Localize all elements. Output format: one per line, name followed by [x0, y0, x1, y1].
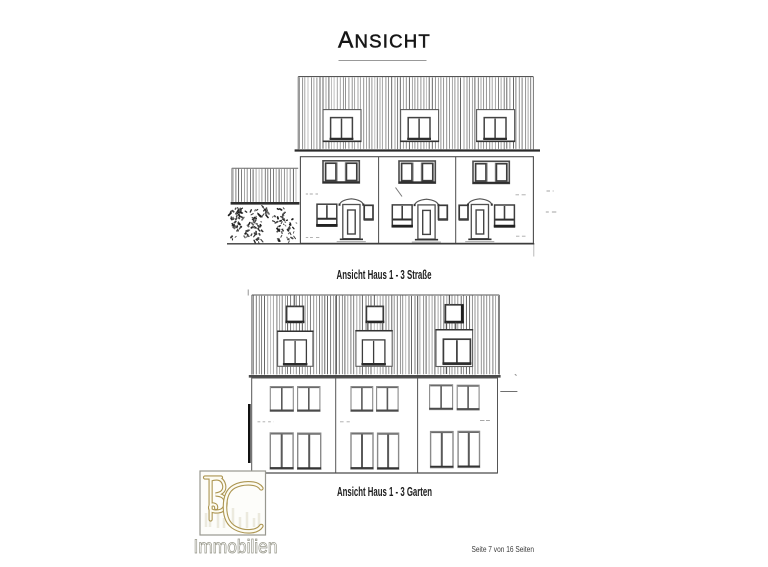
svg-text:Ansicht Haus 1 - 3 Straße: Ansicht Haus 1 - 3 Straße — [337, 267, 432, 282]
svg-text:Ansicht Haus 1 - 3 Garten: Ansicht Haus 1 - 3 Garten — [337, 484, 432, 499]
svg-text:Seite 7 von 16 Seiten: Seite 7 von 16 Seiten — [472, 545, 535, 554]
svg-text:Immobilien: Immobilien — [194, 536, 278, 558]
svg-text:ANSICHT: ANSICHT — [338, 27, 431, 53]
